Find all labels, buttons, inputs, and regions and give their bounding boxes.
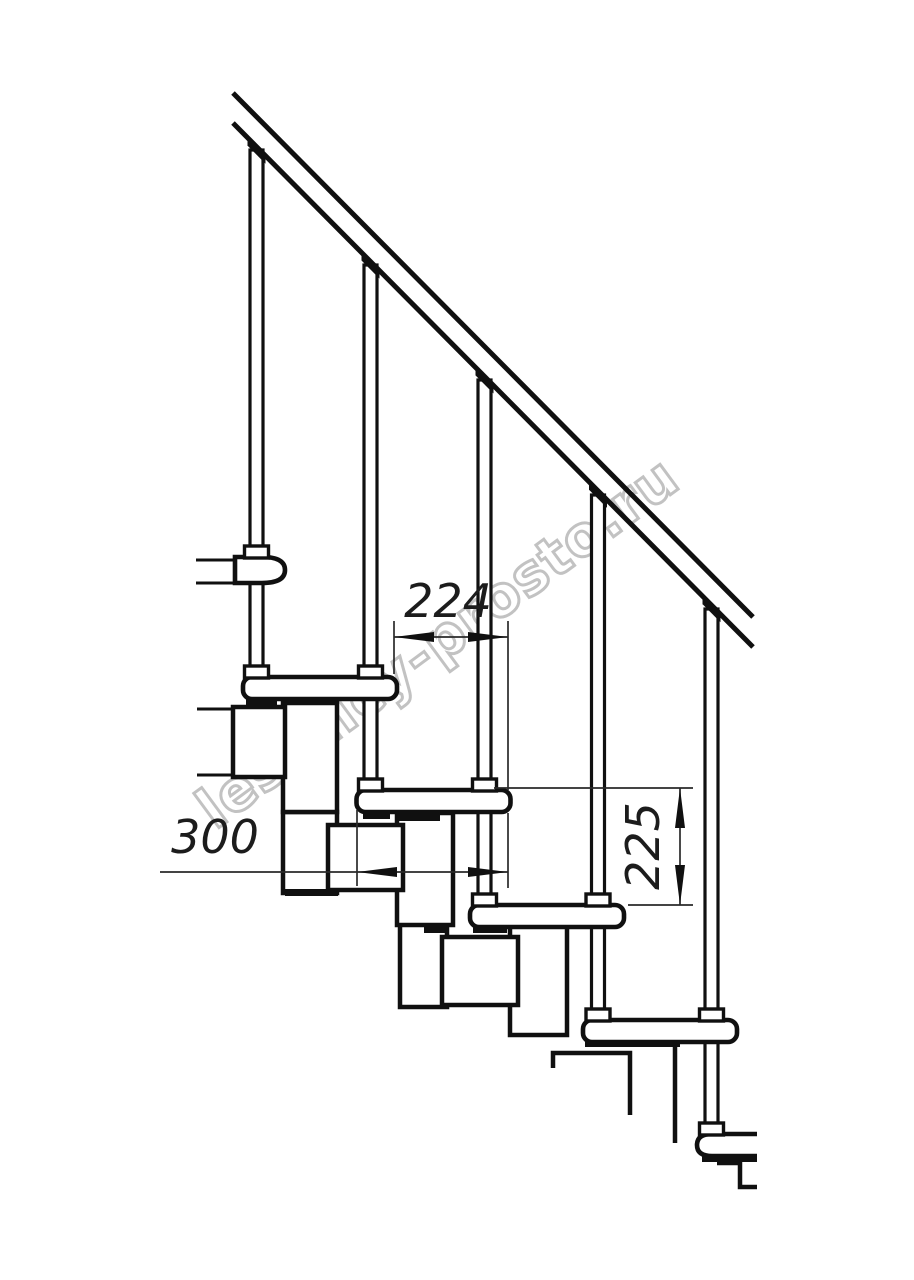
support-step-outline (717, 1163, 757, 1187)
tread-top-partial (235, 557, 285, 583)
connector-tab (617, 1041, 680, 1047)
dimension-label-300: 300 (171, 810, 259, 864)
collar (473, 779, 497, 791)
baluster-5 (705, 609, 718, 1134)
tread-3 (470, 905, 624, 927)
collar (245, 666, 269, 678)
connector-tab (363, 812, 390, 819)
connector-tab (285, 889, 338, 896)
connector-tab (702, 1155, 757, 1162)
support-module-partial (553, 1053, 630, 1115)
collar (586, 1009, 610, 1021)
support-module (442, 937, 518, 1005)
dimension-label-225: 225 (616, 802, 670, 890)
support-module (397, 813, 453, 925)
baluster-1 (250, 150, 263, 677)
baluster-4 (592, 495, 605, 1020)
baluster-2 (364, 265, 377, 790)
collar (700, 1009, 724, 1021)
staircase-side-view-drawing: lestnicy-prosto.ru (0, 0, 914, 1280)
collar (700, 1123, 724, 1135)
tread-4 (583, 1020, 737, 1042)
connector-tab (473, 925, 507, 933)
collar (473, 894, 497, 906)
connector-tab (305, 698, 334, 704)
connector-tab (424, 926, 447, 933)
connector-tab (585, 1040, 617, 1047)
baluster-3 (478, 380, 491, 905)
connector-tab (246, 698, 277, 706)
tread-5-partial (697, 1134, 757, 1156)
tread-1 (243, 677, 397, 699)
support-module (283, 703, 337, 812)
collar (586, 894, 610, 906)
handrail-top-edge (233, 93, 753, 617)
dimension-label-224: 224 (404, 574, 492, 628)
arrowhead-up (675, 788, 685, 828)
arrowhead-down (675, 865, 685, 905)
support-module (328, 825, 403, 890)
tread-2 (357, 790, 511, 812)
collar (359, 666, 383, 678)
connector-tab (398, 813, 440, 821)
collar (359, 779, 383, 791)
support-module (233, 707, 285, 777)
staircase-drawing-page: lestnicy-prosto.ru (0, 0, 914, 1280)
collar (245, 546, 269, 558)
